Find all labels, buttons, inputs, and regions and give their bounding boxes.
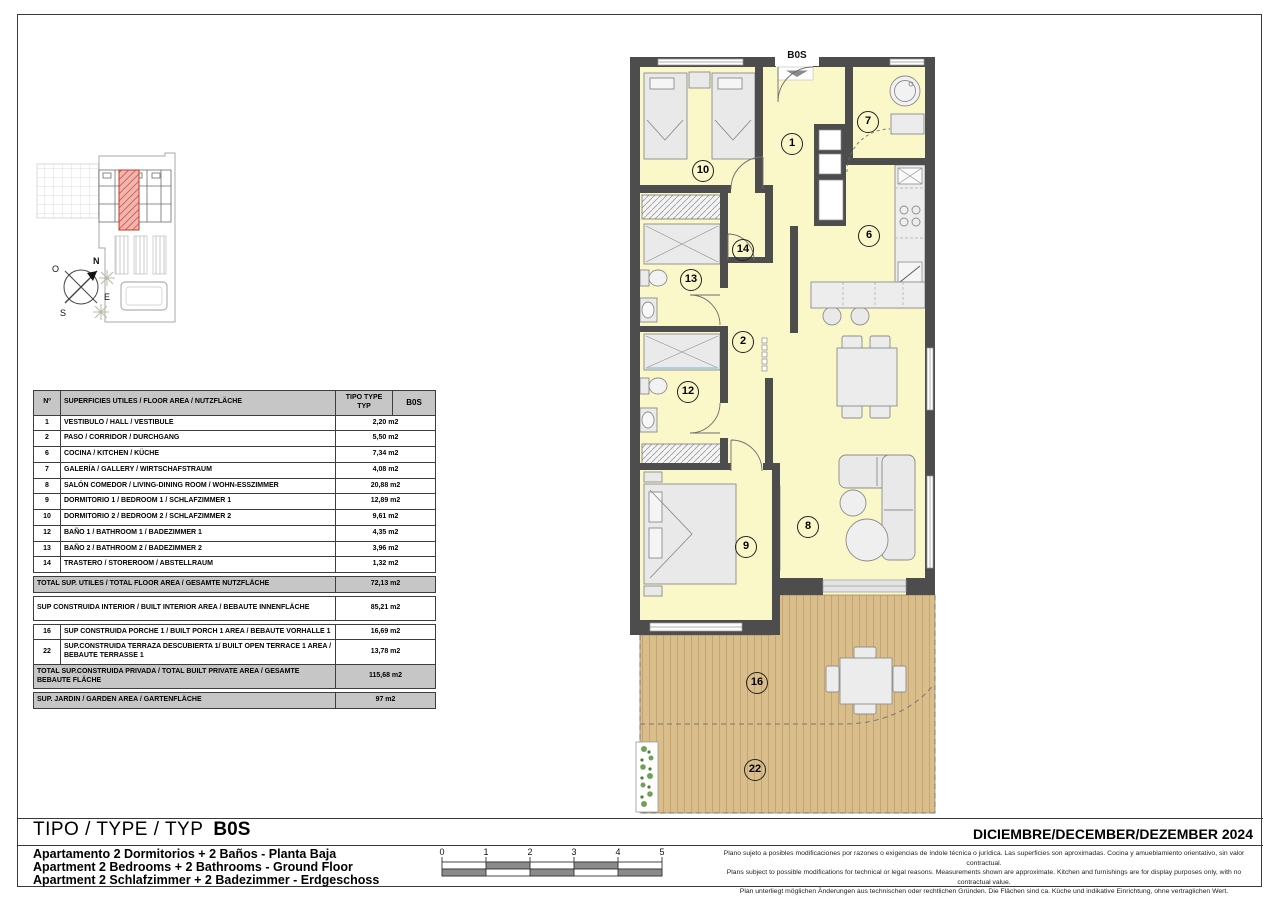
- kitchen-island: [811, 282, 925, 308]
- garden-walkways: [115, 236, 166, 274]
- col-code: B0S: [393, 391, 436, 416]
- scale-0: 0: [439, 847, 444, 857]
- table-row: 6COCINA / KITCHEN / KÜCHE7,34 m2: [34, 447, 436, 463]
- entry: B0S: [775, 48, 819, 80]
- table-header-row: Nº SUPERFICIES UTILES / FLOOR AREA / NUT…: [34, 391, 436, 416]
- table-row: 2PASO / CORRIDOR / DURCHGANG5,50 m2: [34, 431, 436, 447]
- table-row: 12BAÑO 1 / BATHROOM 1 / BADEZIMMER 14,35…: [34, 525, 436, 541]
- entry-label: B0S: [787, 50, 807, 61]
- wardrobe-2: [642, 444, 724, 465]
- disclaimer-de: Plan unterliegt möglichen Änderungen aus…: [710, 887, 1258, 897]
- table-row: 8SALÓN COMEDOR / LIVING-DINING ROOM / WO…: [34, 478, 436, 494]
- col-description: SUPERFICIES UTILES / FLOOR AREA / NUTZFL…: [61, 391, 336, 416]
- room-badge-bathroom2: 13: [680, 269, 702, 291]
- bedroom1-bed: [644, 472, 736, 596]
- compass-o: O: [52, 264, 59, 274]
- table-row: TOTAL SUP.CONSTRUIDA PRIVADA / TOTAL BUI…: [34, 664, 436, 689]
- compass-rose: N O E S: [48, 252, 118, 322]
- side-table: [840, 490, 866, 516]
- room-badge-bedroom2: 10: [692, 160, 714, 182]
- compass-s: S: [60, 308, 66, 318]
- room-badge-kitchen: 6: [858, 225, 880, 247]
- scale-bar: 0 1 2 3 4 5: [430, 846, 670, 880]
- room-badge-storeroom: 14: [732, 239, 754, 261]
- room-badge-bathroom1: 12: [677, 381, 699, 403]
- room-badge-living: 8: [797, 516, 819, 538]
- planter: [636, 742, 658, 812]
- table-row: 1VESTIBULO / HALL / VESTIBULE2,20 m2: [34, 415, 436, 431]
- scale-2: 2: [527, 847, 532, 857]
- bar-stool: [823, 307, 841, 325]
- table-row: 16SUP CONSTRUIDA PORCHE 1 / BUILT PORCH …: [34, 624, 436, 640]
- table-row: 22SUP.CONSTRUIDA TERRAZA DESCUBIERTA 1/ …: [34, 640, 436, 665]
- utility-column: [814, 124, 846, 226]
- plan-sheet: N O E S Nº SUPERFICIES UTILES / FLOOR AR…: [0, 0, 1280, 903]
- type-label: TIPO / TYPE / TYP: [33, 819, 203, 840]
- project-date: DICIEMBRE/DECEMBER/DEZEMBER 2024: [973, 826, 1253, 842]
- dining-set: [837, 336, 897, 418]
- type-code: B0S: [213, 819, 250, 840]
- table-row: 7GALERÍA / GALLERY / WIRTSCHAFSTRAUM4,08…: [34, 462, 436, 478]
- room-badge-porch: 16: [746, 672, 768, 694]
- legal-disclaimer: Plano sujeto a posibles modificaciones p…: [710, 849, 1258, 897]
- neighbor-building: [37, 164, 99, 218]
- area-table: Nº SUPERFICIES UTILES / FLOOR AREA / NUT…: [33, 390, 436, 709]
- highlighted-unit: [119, 170, 139, 230]
- room-badge-hall: 1: [781, 133, 803, 155]
- table-row: TOTAL SUP. UTILES / TOTAL FLOOR AREA / G…: [34, 577, 436, 593]
- wardrobe-1: [642, 195, 724, 219]
- room-badge-bedroom1: 9: [735, 536, 757, 558]
- apartment-titles: Apartamento 2 Dormitorios + 2 Baños - Pl…: [33, 848, 379, 886]
- room-badge-corridor: 2: [732, 331, 754, 353]
- table-row: 13BAÑO 2 / BATHROOM 2 / BADEZIMMER 23,96…: [34, 541, 436, 557]
- coffee-table: [846, 519, 888, 561]
- scale-5: 5: [659, 847, 664, 857]
- table-row: 10DORMITORIO 2 / BEDROOM 2 / SCHLAFZIMME…: [34, 510, 436, 526]
- compass-e: E: [104, 292, 110, 302]
- pool: [121, 282, 167, 310]
- col-type: TIPO TYPE TYP: [336, 391, 393, 416]
- table-row: SUP. JARDIN / GARDEN AREA / GARTENFLÄCHE…: [34, 693, 436, 709]
- type-title: TIPO / TYPE / TYPB0S: [33, 819, 250, 841]
- room-badge-terrace: 22: [744, 759, 766, 781]
- disclaimer-en: Plans subject to possible modifications …: [710, 868, 1258, 887]
- compass-n: N: [93, 256, 100, 266]
- scale-3: 3: [571, 847, 576, 857]
- room-badge-gallery: 7: [857, 111, 879, 133]
- title-es: Apartamento 2 Dormitorios + 2 Baños - Pl…: [33, 848, 379, 861]
- scale-4: 4: [615, 847, 620, 857]
- bar-stool: [851, 307, 869, 325]
- table-row: SUP CONSTRUIDA INTERIOR / BUILT INTERIOR…: [34, 596, 436, 620]
- disclaimer-es: Plano sujeto a posibles modificaciones p…: [710, 849, 1258, 868]
- scale-1: 1: [483, 847, 488, 857]
- corridor-shelf-marks: [762, 338, 767, 371]
- table-row: 9DORMITORIO 1 / BEDROOM 1 / SCHLAFZIMMER…: [34, 494, 436, 510]
- title-en: Apartment 2 Bedrooms + 2 Bathrooms - Gro…: [33, 861, 379, 874]
- area-table-body: 1VESTIBULO / HALL / VESTIBULE2,20 m22PAS…: [34, 415, 436, 709]
- col-number: Nº: [34, 391, 61, 416]
- table-row: 14TRASTERO / STOREROOM / ABSTELLRAUM1,32…: [34, 557, 436, 573]
- floor-plan: B0S: [628, 48, 938, 848]
- title-de: Apartment 2 Schlafzimmer + 2 Badezimmer …: [33, 874, 379, 887]
